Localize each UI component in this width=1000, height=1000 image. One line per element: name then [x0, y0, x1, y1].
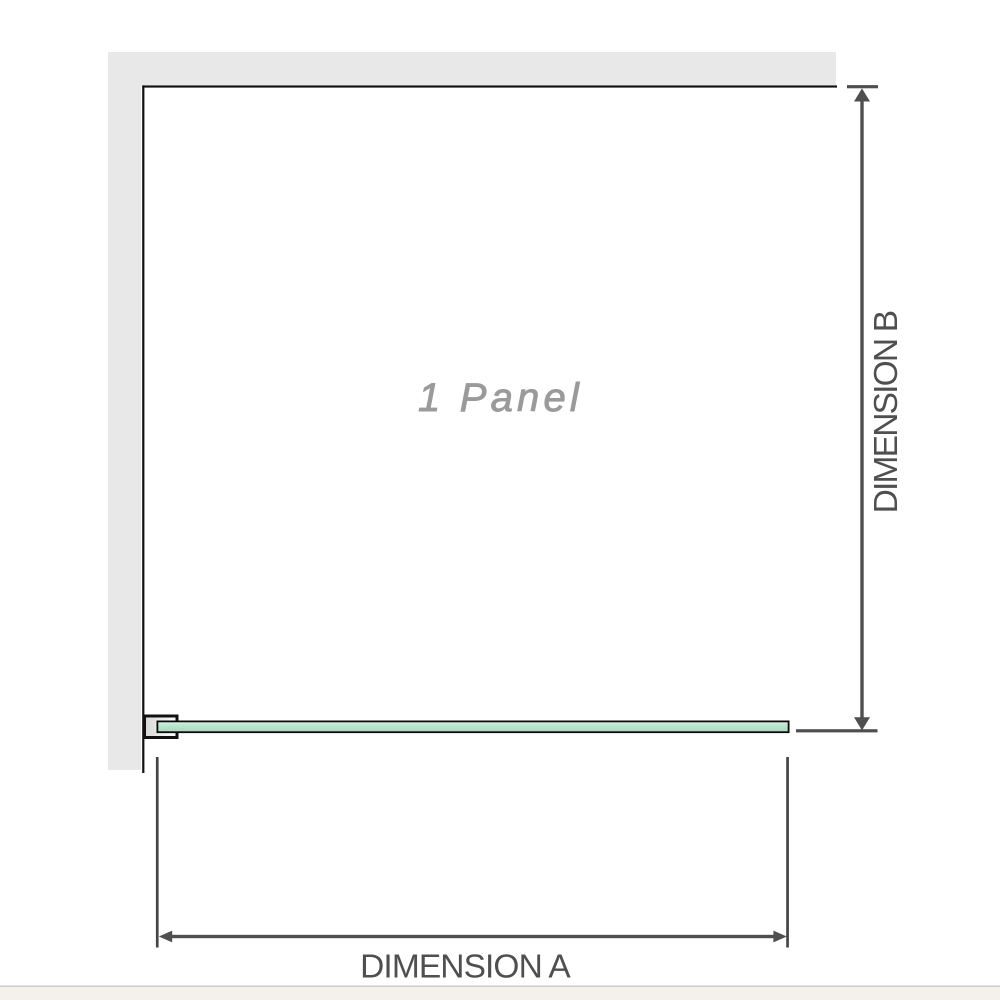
svg-text:DIMENSION A: DIMENSION A	[360, 949, 571, 986]
svg-text:DIMENSION B: DIMENSION B	[868, 311, 905, 513]
svg-text:1 Panel: 1 Panel	[418, 376, 583, 420]
